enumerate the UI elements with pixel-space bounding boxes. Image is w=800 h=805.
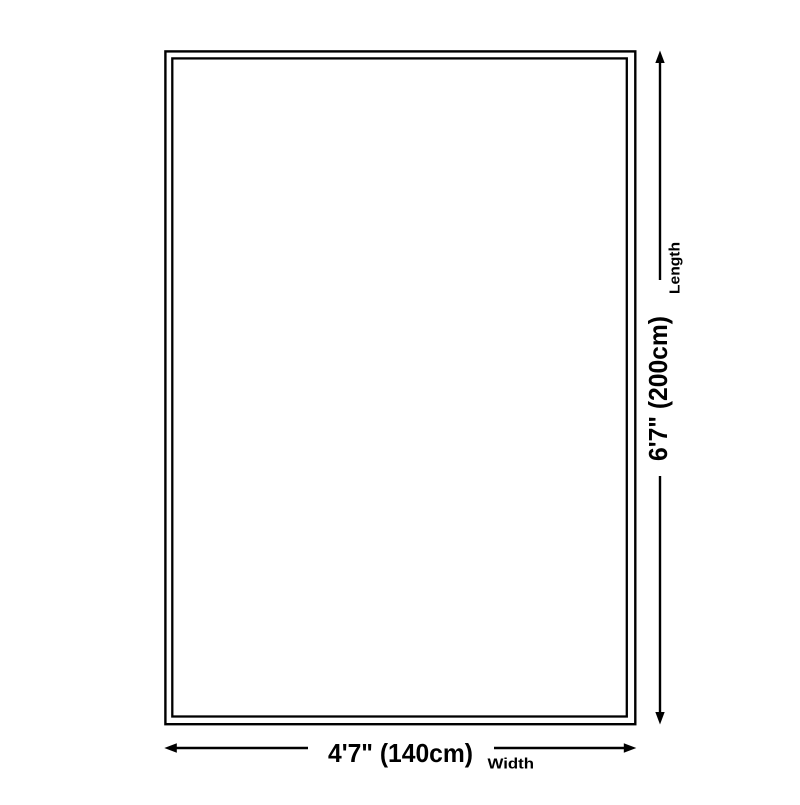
svg-text:6'7" (200cm): 6'7" (200cm)	[643, 316, 673, 461]
svg-text:Width: Width	[488, 756, 535, 773]
svg-text:Length: Length	[667, 242, 684, 294]
svg-text:4'7" (140cm): 4'7" (140cm)	[328, 738, 473, 768]
